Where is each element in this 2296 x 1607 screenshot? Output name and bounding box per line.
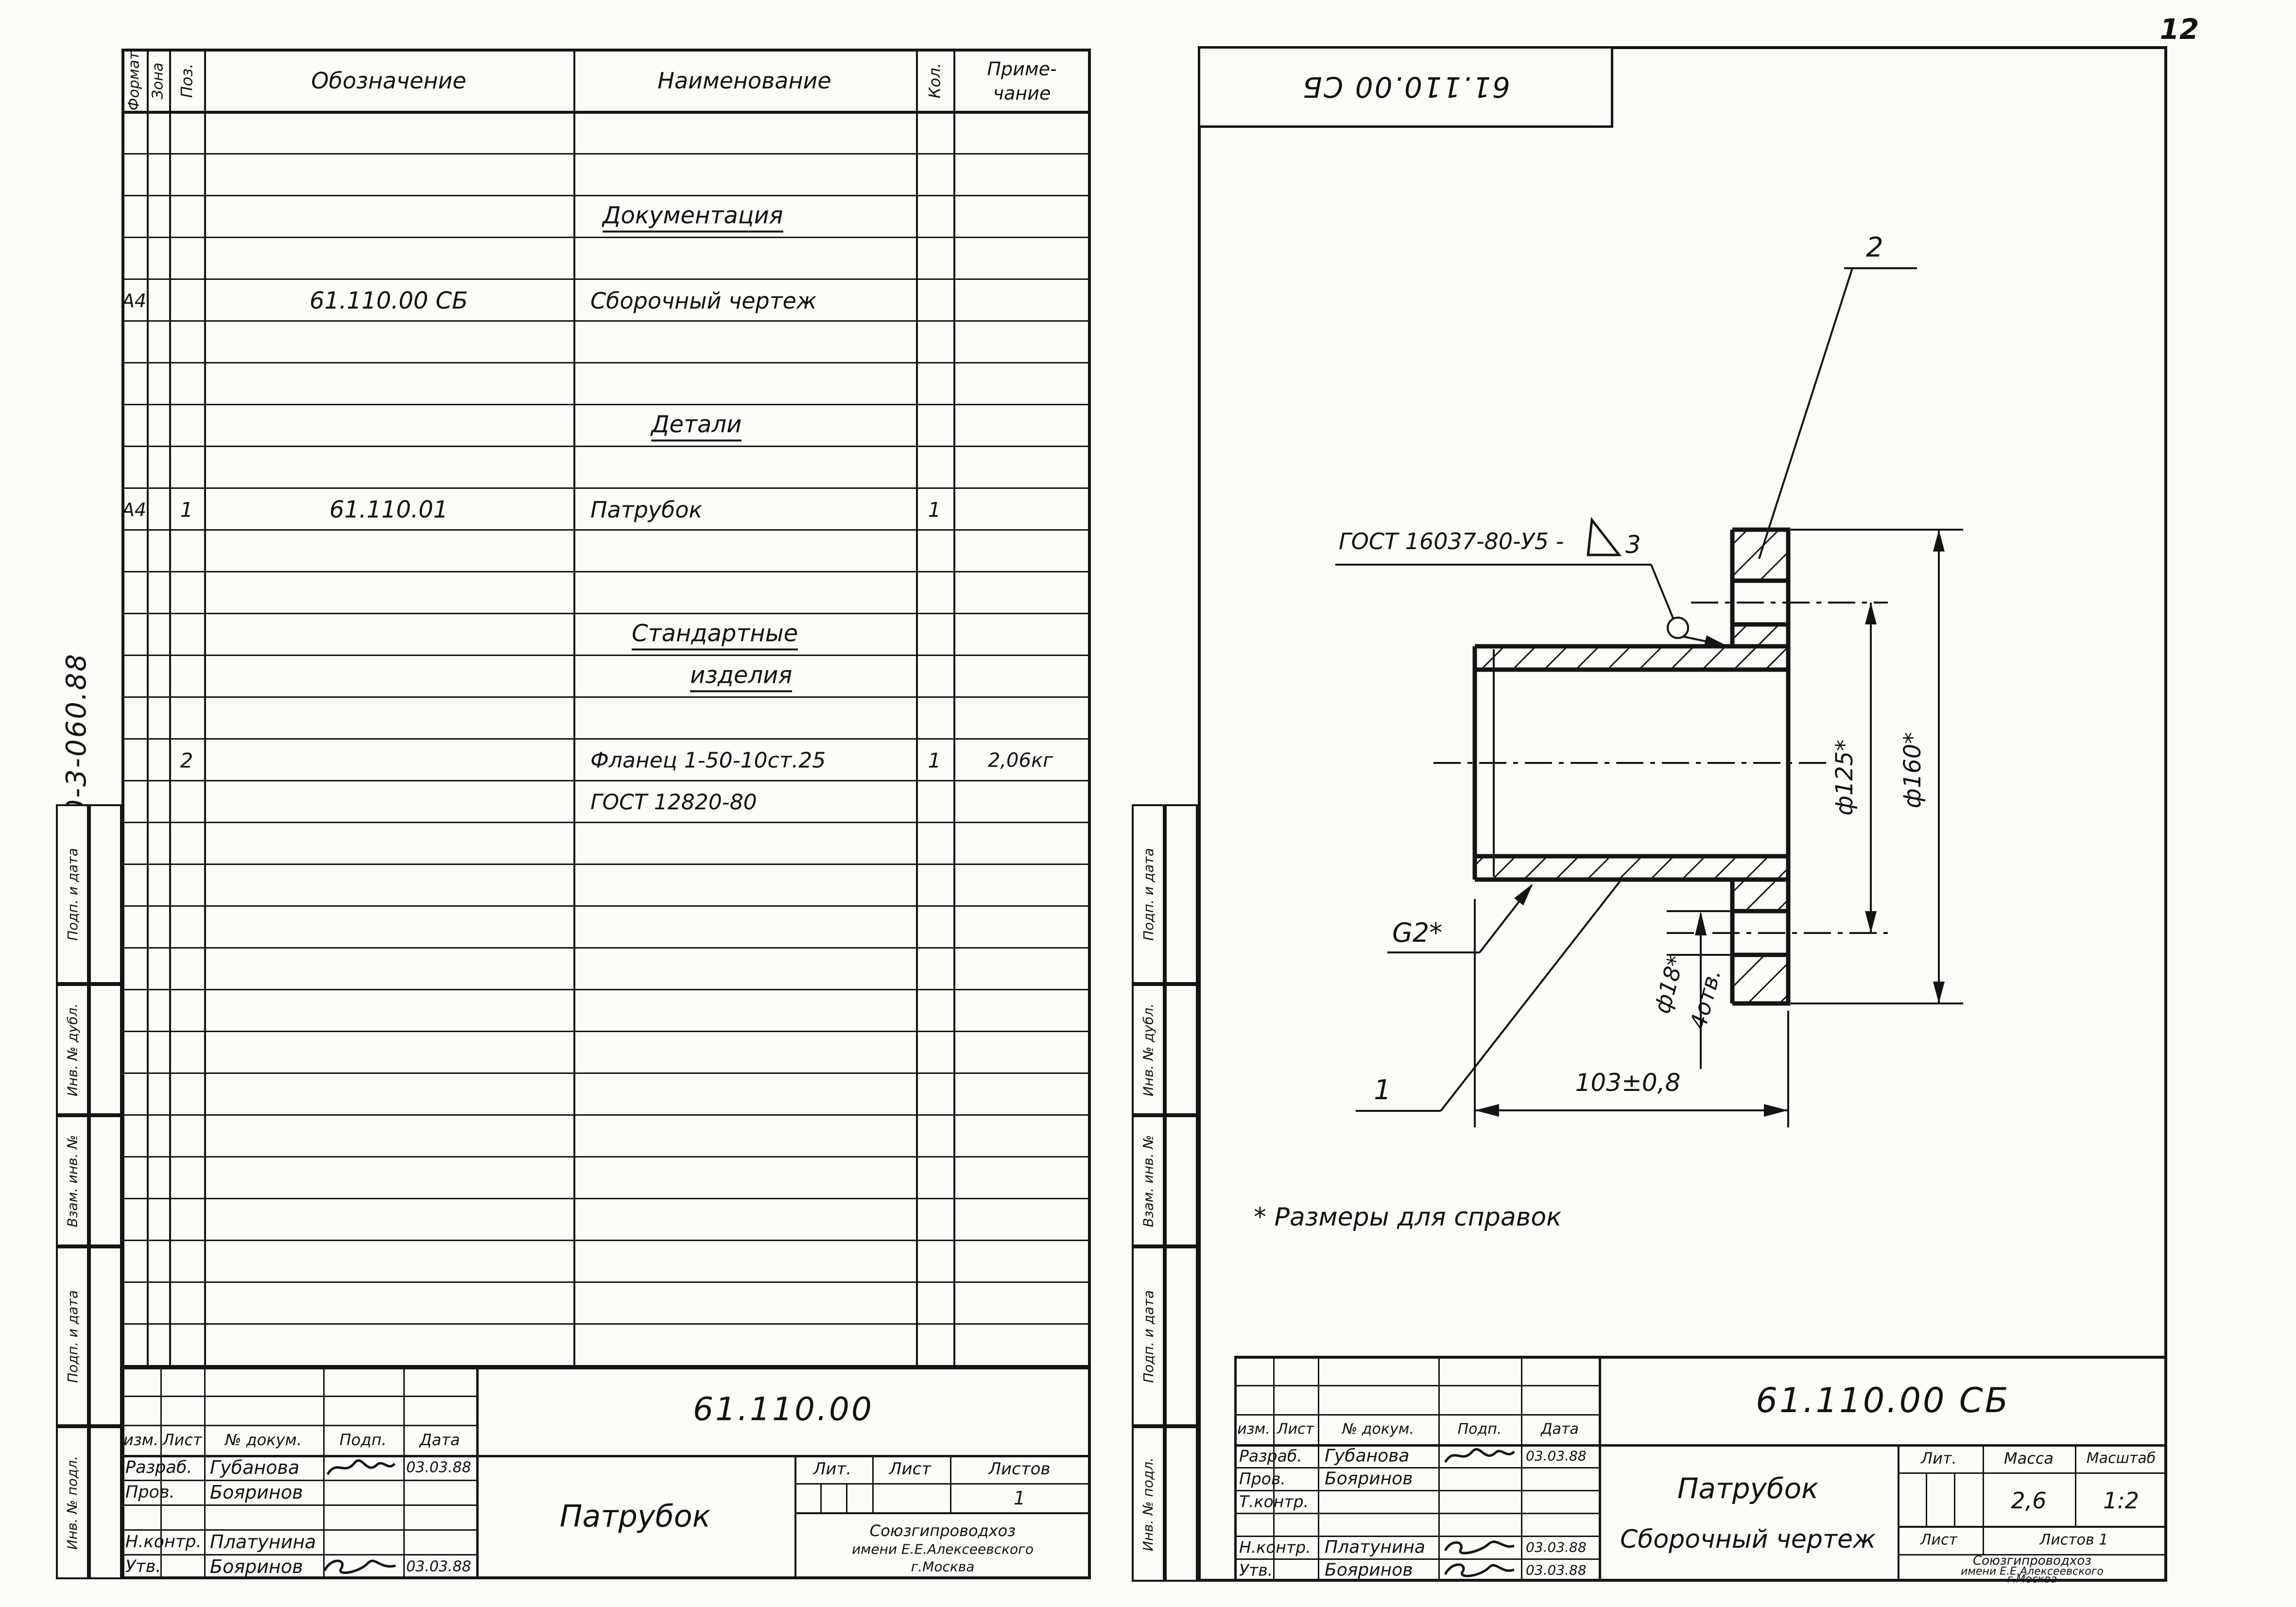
titleblock-line [1898,1526,2167,1528]
side-stamp-box [1165,1115,1198,1246]
tb-lit-label: Лит. [1921,1449,1957,1468]
tb-person: Бояринов [210,1556,303,1577]
tb-person: Бояринов [1325,1560,1413,1580]
titleblock-line [1438,1356,1440,1582]
dim-hole-count-label: 4отв. [1685,966,1726,1032]
side-label-text: Подп. и дата [65,848,81,941]
tb-listov-label: Листов 1 [2040,1532,2108,1549]
extension-lines [1475,530,1963,1127]
tb-header-doc: № докум. [225,1431,302,1449]
titleblock-part-title: Патрубок [560,1499,710,1534]
tb-person: Бояринов [210,1482,303,1503]
titleblock-line [1234,1356,2167,1359]
spec-cell-name: Фланец 1-50-10ст.25 [590,748,826,773]
titleblock-line [121,1425,476,1426]
weld-leader-1 [1651,565,1673,618]
titleblock-line [846,1483,847,1512]
side-stamp-box [89,804,122,984]
titleblock-line [121,1480,476,1481]
titleblock-line [794,1455,796,1579]
tb-role: Н.контр. [125,1532,202,1552]
spec-cell-pos: 2 [180,749,193,773]
side-label-podp-data-1: Подп. и дата [56,804,89,984]
spec-cell-name: Сборочный чертеж [590,288,816,314]
side-label-inv-dubl: Инв. № дубл. [1132,984,1165,1115]
side-stamp-box [89,1426,122,1579]
pipe-wall-top [1475,646,1788,670]
side-label-text: Инв. № подл. [65,1456,81,1550]
tb-listov-label: Листов [988,1459,1050,1479]
pipe-wall-bottom [1475,856,1788,880]
spec-section-standard-1: Стандартные [632,620,798,651]
spec-col-format: Формат [121,49,147,113]
flange-hatch-bottom [1732,955,1788,1003]
signature [1442,1446,1518,1466]
tb-role: Разраб. [1239,1447,1302,1466]
side-label-podp-data-1: Подп. и дата [1132,804,1165,984]
side-label-text: Подп. и дата [65,1290,81,1383]
titleblock-line [1898,1472,2167,1474]
part-outline [1475,530,1788,1003]
side-stamp-box [89,984,122,1115]
tb-role: Т.контр. [1239,1492,1309,1511]
dim-hole-label: ф18* [1649,952,1689,1016]
side-label-podp-data-2: Подп. и дата [1132,1246,1165,1426]
side-label-podp-data-2: Подп. и дата [56,1246,89,1426]
flange-hatch-hub-bottom [1732,880,1788,911]
weld-grade-label: 3 [1625,531,1641,559]
tb-org-line3: г.Москва [911,1559,975,1575]
signature [1442,1537,1518,1557]
side-label-text: Инв. № подл. [1140,1457,1157,1551]
titleblock-line [1954,1472,1955,1526]
titleblock-line [1234,1414,1599,1416]
position-1-label: 1 [1374,1074,1391,1106]
titleblock-doc-type: Сборочный чертеж [1620,1525,1876,1554]
side-stamp-box [89,1246,122,1426]
flange-hatch-hub-top [1732,624,1788,646]
tb-header-sign: Подп. [340,1431,387,1449]
spec-col-zone: Зона [147,49,169,113]
position-2-label: 2 [1866,232,1883,263]
spec-section-details: Детали [651,411,742,442]
tb-massa-label: Масса [2004,1449,2054,1468]
weld-note-label: ГОСТ 16037-80-У5 - [1339,528,1564,554]
spec-header-note-1: Приме- [987,58,1056,80]
side-label-text: Инв. № дубл. [65,1003,81,1096]
spec-header-zone: Зона [150,62,167,99]
spec-header-note-2: чание [993,83,1051,104]
signature [325,1457,397,1478]
titleblock-line [1234,1490,1599,1491]
tb-header-date: Дата [420,1431,460,1449]
signature [322,1556,399,1577]
tb-listov-value: 1 [1014,1487,1025,1509]
tb-date: 03.03.88 [1526,1539,1587,1555]
spec-cell-designation: 61.110.00 СБ [310,287,468,314]
spec-header-name: Наименование [657,68,831,94]
tb-header-list: Лист [1277,1421,1314,1438]
spec-header-pos: Поз. [177,64,196,98]
titleblock-line [1983,1444,1984,1554]
titleblock-line [1599,1356,1601,1582]
titleblock-line [1521,1356,1522,1582]
tb-org-line1: Союзгипроводхоз [870,1521,1016,1540]
side-label-text: Подп. и дата [1140,1290,1157,1383]
tb-date: 03.03.88 [1526,1448,1587,1464]
spec-header-format: Формат [126,51,143,110]
titleblock-part-title: Патрубок [1677,1472,1818,1505]
position-2-leader [1759,268,1852,559]
signature [1442,1560,1518,1580]
tb-person: Губанова [1325,1446,1409,1466]
tb-header-izm: изм. [123,1431,158,1449]
tb-header-sign: Подп. [1458,1421,1502,1438]
reference-note: * Размеры для справок [1254,1203,1562,1232]
spec-cell-format: А4 [122,290,146,311]
tb-header-list: Лист [162,1431,202,1449]
side-label-text: Подп. и дата [1140,848,1157,941]
side-label-text: Взам. инв. № [1140,1135,1157,1227]
spec-cell-qty: 1 [928,749,941,773]
spec-cell-name: Патрубок [590,497,702,523]
dim-arrow-hole [1695,911,1707,935]
spec-cell-qty: 1 [928,498,941,522]
side-label-inv-podl: Инв. № подл. [56,1426,89,1579]
titleblock-line [403,1366,405,1579]
tb-header-date: Дата [1541,1421,1579,1438]
thread-label: G2* [1392,917,1442,948]
weld-triangle-icon [1588,520,1619,555]
spec-col-qty: Кол. [916,49,953,113]
titleblock-line [204,1366,206,1579]
tb-person: Платунина [1325,1538,1425,1557]
titleblock-line [1234,1558,1599,1560]
titleblock-line [121,1396,476,1397]
tb-lit-label: Лит. [813,1459,851,1479]
spec-cell-note: 2,06кг [988,749,1053,772]
tb-org-line2: имени Е.Е.Алексеевского [852,1541,1034,1557]
titleblock-line [794,1483,1091,1485]
dim-od-label: ф160* [1899,732,1926,809]
titleblock-line [121,1366,1091,1369]
side-label-text: Инв. № дубл. [1140,1003,1157,1096]
tb-role: Пров. [125,1483,175,1502]
titleblock-line [1234,1356,1237,1582]
titleblock-line [1234,1385,1599,1386]
assembly-drawing: ф160* ф125* 103±0,8 ф18* 4отв. G2* 1 2 [1198,46,2167,1582]
titleblock-designation: 61.110.00 СБ [1756,1381,2010,1420]
titleblock-line [121,1504,476,1506]
spec-cell-format: А4 [122,499,146,520]
tb-role: Утв. [1239,1561,1273,1580]
tb-person: Платунина [210,1531,316,1553]
side-stamp-box [89,1115,122,1246]
side-label-vzam-inv: Взам. инв. № [1132,1115,1165,1246]
titleblock-line [1926,1472,1927,1526]
tb-masshtab-label: Масштаб [2087,1450,2156,1467]
titleblock-line [1234,1467,1599,1469]
titleblock-designation: 61.110.00 [693,1391,874,1428]
tb-role: Разраб. [125,1458,192,1477]
titleblock-line [476,1366,479,1579]
tb-date: 03.03.88 [406,1558,471,1575]
side-label-inv-podl: Инв. № подл. [1132,1426,1165,1582]
dim-bolt-circle-label: ф125* [1831,740,1858,816]
tb-org-line3: г.Москва [2007,1573,2057,1586]
spec-section-documentation: Документация [603,202,783,233]
spec-section-standard-2: изделия [690,662,792,692]
titleblock-line [820,1483,822,1512]
side-stamp-box [1165,804,1198,984]
tb-person: Губанова [210,1457,299,1478]
spec-cell-name: ГОСТ 12820-80 [590,790,757,815]
titleblock-line [1898,1444,1899,1582]
spec-header-qty: Кол. [925,63,944,99]
side-label-inv-dubl: Инв. № дубл. [56,984,89,1115]
tb-role: Н.контр. [1239,1538,1311,1557]
spec-cell-designation: 61.110.01 [329,496,448,523]
titleblock-line [794,1512,1091,1514]
tb-list-label: Лист [1920,1532,1957,1549]
scanned-drawing-sheet: 820-3-060.88 Формат Зона Поз. Обозначени… [0,0,2296,1607]
titleblock-line [1234,1513,1599,1514]
dim-length-label: 103±0,8 [1575,1069,1681,1097]
spec-col-pos: Поз. [169,49,204,113]
titleblock-line [121,1554,476,1555]
tb-person: Бояринов [1325,1469,1413,1489]
side-label-text: Взам. инв. № [65,1135,81,1227]
tb-header-doc: № докум. [1342,1421,1414,1438]
tb-list-label: Лист [889,1459,931,1479]
thread-leader-arrow [1514,880,1537,906]
titleblock-line [1318,1356,1319,1582]
page-number: 12 [2160,13,2199,46]
side-stamp-box [1165,1426,1198,1582]
side-label-vzam-inv: Взам. инв. № [56,1115,89,1246]
side-stamp-box [1165,984,1198,1115]
tb-date: 03.03.88 [1526,1562,1587,1578]
spec-header-designation: Обозначение [311,68,466,94]
titleblock-line [121,1529,476,1531]
tb-role: Пров. [1239,1469,1286,1488]
weld-leader-circle [1668,618,1688,638]
tb-role: Утв. [125,1557,161,1576]
side-stamp-box [1165,1246,1198,1426]
tb-header-izm: изм. [1237,1421,1270,1438]
tb-scale-value: 1:2 [2103,1487,2139,1514]
tb-date: 03.03.88 [406,1459,471,1476]
spec-cell-pos: 1 [180,498,193,522]
tb-massa-value: 2,6 [2011,1487,2046,1514]
titleblock-line [2075,1444,2076,1526]
